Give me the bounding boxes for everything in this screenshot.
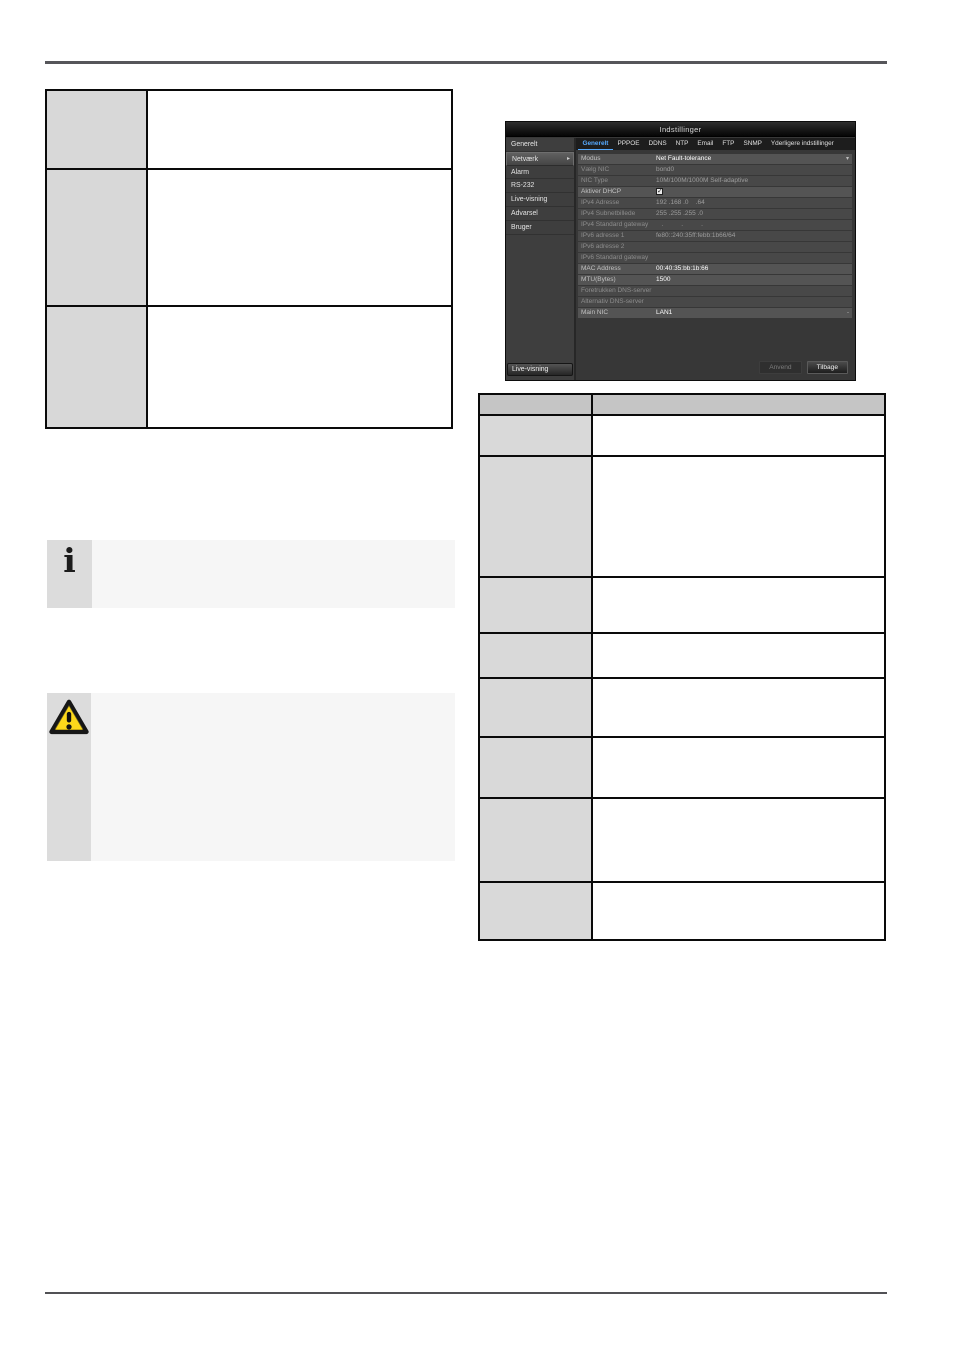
dialog-title: Indstillinger xyxy=(506,122,855,137)
form-label: Main NIC xyxy=(578,308,656,318)
sidebar-item-bruger[interactable]: Bruger xyxy=(506,221,574,235)
form-label: Aktiver DHCP xyxy=(578,187,656,197)
table-cell-content xyxy=(147,306,452,428)
form-value: 255 .255 .255 .0 xyxy=(656,209,852,219)
tab-email[interactable]: Email xyxy=(693,138,718,150)
form-label: IPv6 adresse 1 xyxy=(578,231,656,241)
form-row-main-nic: Main NICLAN1- xyxy=(578,308,852,318)
form-value: 10M/100M/1000M Self-adaptive xyxy=(656,176,852,186)
form-value xyxy=(656,242,852,252)
form-row-foretrukken-dns-server: Foretrukken DNS-server xyxy=(578,286,852,296)
info-icon: i xyxy=(63,544,76,577)
table-row xyxy=(479,633,885,678)
form-row-nic-type: NIC Type10M/100M/1000M Self-adaptive xyxy=(578,176,852,186)
form-label: IPv4 Standard gateway xyxy=(578,220,656,230)
sidebar-item-label: Live-visning xyxy=(511,196,547,203)
form-row-ipv4-standard-gateway: IPv4 Standard gateway . . . xyxy=(578,220,852,230)
form-row-mtu-bytes-: MTU(Bytes)1500 xyxy=(578,275,852,285)
table-header-cell xyxy=(479,394,592,415)
form-value xyxy=(656,297,852,307)
spec-table-right xyxy=(478,393,886,941)
table-cell-label xyxy=(479,798,592,882)
form-label: IPv4 Adresse xyxy=(578,198,656,208)
bottom-divider xyxy=(45,1292,887,1294)
form-value: . . . xyxy=(656,220,852,230)
table-cell-label xyxy=(46,306,147,428)
dialog-tab-bar: GenereltPPPOEDDNSNTPEmailFTPSNMPYderlige… xyxy=(576,138,855,150)
sidebar-item-netv-rk[interactable]: Netværk▸ xyxy=(506,152,574,166)
form-label: Foretrukken DNS-server xyxy=(578,286,656,296)
tab-ftp[interactable]: FTP xyxy=(718,138,739,150)
table-row xyxy=(479,798,885,882)
table-row xyxy=(479,415,885,456)
table-row xyxy=(479,737,885,798)
form-value[interactable]: 1500 xyxy=(656,275,852,285)
form-row-ipv4-adresse: IPv4 Adresse192 .168 .0 .64 xyxy=(578,198,852,208)
form-row-ipv4-subnetbillede: IPv4 Subnetbillede255 .255 .255 .0 xyxy=(578,209,852,219)
table-cell-label xyxy=(46,169,147,306)
dialog-sidebar-list: GenereltNetværk▸AlarmRS-232Live-visningA… xyxy=(506,138,574,235)
table-cell-label xyxy=(479,633,592,678)
sidebar-item-label: RS-232 xyxy=(511,182,534,189)
form-row-mac-address: MAC Address00:40:35:bb:1b:66 xyxy=(578,264,852,274)
form-value[interactable]: ✓ xyxy=(656,187,852,197)
spec-table-left-body xyxy=(46,90,452,428)
tab-snmp[interactable]: SNMP xyxy=(739,138,766,150)
sidebar-item-live-view-footer[interactable]: Live-visning xyxy=(507,363,573,376)
dhcp-checkbox[interactable]: ✓ xyxy=(656,188,663,195)
settings-dialog: Indstillinger GenereltNetværk▸AlarmRS-23… xyxy=(505,121,856,381)
table-cell-label xyxy=(479,882,592,940)
form-value xyxy=(656,286,852,296)
form-label: Alternativ DNS-server xyxy=(578,297,656,307)
tilbage-button[interactable]: Tilbage xyxy=(807,361,848,374)
table-cell-label xyxy=(479,415,592,456)
sidebar-item-rs-232[interactable]: RS-232 xyxy=(506,179,574,193)
table-header-cell xyxy=(592,394,885,415)
dialog-button-row: AnvendTilbage xyxy=(759,361,848,374)
form-row-alternativ-dns-server: Alternativ DNS-server xyxy=(578,297,852,307)
sidebar-item-generelt[interactable]: Generelt xyxy=(506,138,574,152)
info-note: i xyxy=(47,540,455,608)
network-settings-form: ModusNet Fault-tolerance▾Vælg NICbond0NI… xyxy=(578,154,852,318)
sidebar-item-label: Generelt xyxy=(511,141,537,148)
dialog-sidebar: GenereltNetværk▸AlarmRS-232Live-visningA… xyxy=(506,138,576,380)
info-note-body xyxy=(92,540,455,608)
top-divider xyxy=(45,61,887,64)
form-value xyxy=(656,253,852,263)
table-cell-content xyxy=(147,169,452,306)
form-row-ipv6-standard-gateway: IPv6 Standard gateway xyxy=(578,253,852,263)
tab-generelt[interactable]: Generelt xyxy=(578,138,613,150)
table-cell-label xyxy=(479,456,592,577)
spec-table-right-body xyxy=(479,415,885,940)
table-header-row xyxy=(479,394,885,415)
dropdown-indicator-icon: ▾ xyxy=(846,154,849,164)
sidebar-item-label: Advarsel xyxy=(511,210,538,217)
table-cell-content xyxy=(592,882,885,940)
anvend-button[interactable]: Anvend xyxy=(759,361,801,374)
warning-note xyxy=(47,693,455,861)
spec-table-left xyxy=(45,89,453,429)
sidebar-item-label: Bruger xyxy=(511,224,532,231)
spec-table-right-head xyxy=(479,394,885,415)
form-row-ipv6-adresse-2: IPv6 adresse 2 xyxy=(578,242,852,252)
warning-icon xyxy=(49,699,89,736)
table-row xyxy=(479,678,885,737)
form-value: bond0 xyxy=(656,165,852,175)
info-note-strip: i xyxy=(47,540,92,608)
table-cell-content xyxy=(592,577,885,633)
table-cell-label xyxy=(46,90,147,169)
sidebar-item-alarm[interactable]: Alarm xyxy=(506,166,574,180)
tab-ntp[interactable]: NTP xyxy=(671,138,693,150)
form-value[interactable]: LAN1 xyxy=(656,308,852,318)
form-row-v-lg-nic: Vælg NICbond0 xyxy=(578,165,852,175)
form-label: IPv6 Standard gateway xyxy=(578,253,656,263)
form-label: IPv4 Subnetbillede xyxy=(578,209,656,219)
table-row xyxy=(46,90,452,169)
table-cell-content xyxy=(592,633,885,678)
dialog-body: GenereltNetværk▸AlarmRS-232Live-visningA… xyxy=(506,138,855,380)
sidebar-item-advarsel[interactable]: Advarsel xyxy=(506,207,574,221)
table-cell-content xyxy=(592,798,885,882)
form-value[interactable]: Net Fault-tolerance xyxy=(656,154,852,164)
tab-pppoe[interactable]: PPPOE xyxy=(613,138,644,150)
form-row-modus: ModusNet Fault-tolerance▾ xyxy=(578,154,852,164)
table-cell-label xyxy=(479,737,592,798)
tab-ddns[interactable]: DDNS xyxy=(644,138,671,150)
table-row xyxy=(479,456,885,577)
form-value: fe80::240:35ff:febb:1b66/64 xyxy=(656,231,852,241)
form-label: IPv6 adresse 2 xyxy=(578,242,656,252)
table-row xyxy=(46,169,452,306)
table-row xyxy=(479,882,885,940)
manual-page: Indstillinger GenereltNetværk▸AlarmRS-23… xyxy=(0,0,955,1350)
warning-note-strip xyxy=(47,693,91,861)
form-value: 192 .168 .0 .64 xyxy=(656,198,852,208)
table-cell-label xyxy=(479,577,592,633)
table-cell-content xyxy=(147,90,452,169)
table-row xyxy=(46,306,452,428)
tab-yderligere-indstillinger[interactable]: Yderligere indstillinger xyxy=(766,138,838,150)
sidebar-item-live-visning[interactable]: Live-visning xyxy=(506,193,574,207)
dropdown-indicator-icon: - xyxy=(847,308,849,318)
form-row-aktiver-dhcp: Aktiver DHCP✓ xyxy=(578,187,852,197)
form-label: Modus xyxy=(578,154,656,164)
table-cell-content xyxy=(592,678,885,737)
warning-note-body xyxy=(91,693,455,861)
sidebar-item-label: Netværk xyxy=(512,156,538,163)
form-label: Vælg NIC xyxy=(578,165,656,175)
form-label: MAC Address xyxy=(578,264,656,274)
table-cell-content xyxy=(592,737,885,798)
sidebar-item-label: Alarm xyxy=(511,169,529,176)
table-cell-content xyxy=(592,456,885,577)
table-row xyxy=(479,577,885,633)
form-label: MTU(Bytes) xyxy=(578,275,656,285)
form-label: NIC Type xyxy=(578,176,656,186)
table-cell-content xyxy=(592,415,885,456)
table-cell-label xyxy=(479,678,592,737)
form-value[interactable]: 00:40:35:bb:1b:66 xyxy=(656,264,852,274)
form-row-ipv6-adresse-1: IPv6 adresse 1fe80::240:35ff:febb:1b66/6… xyxy=(578,231,852,241)
chevron-right-icon: ▸ xyxy=(567,153,570,167)
dialog-content: GenereltPPPOEDDNSNTPEmailFTPSNMPYderlige… xyxy=(576,138,855,380)
